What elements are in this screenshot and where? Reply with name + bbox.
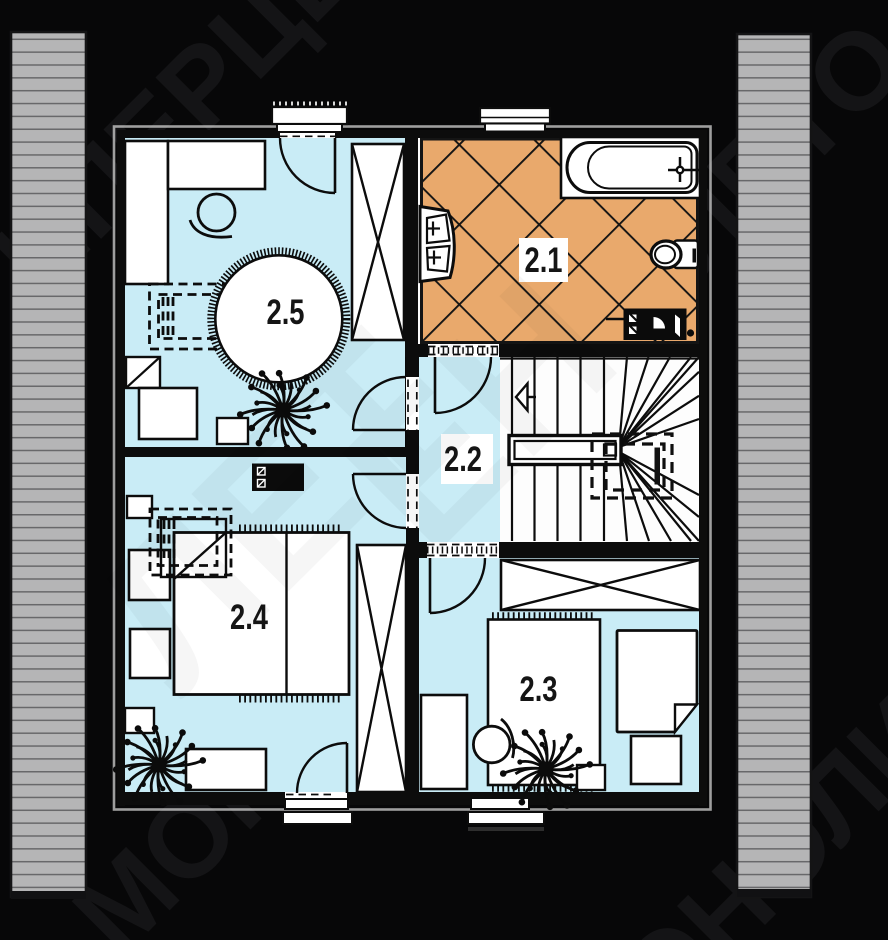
svg-text:2.3: 2.3	[520, 670, 558, 709]
